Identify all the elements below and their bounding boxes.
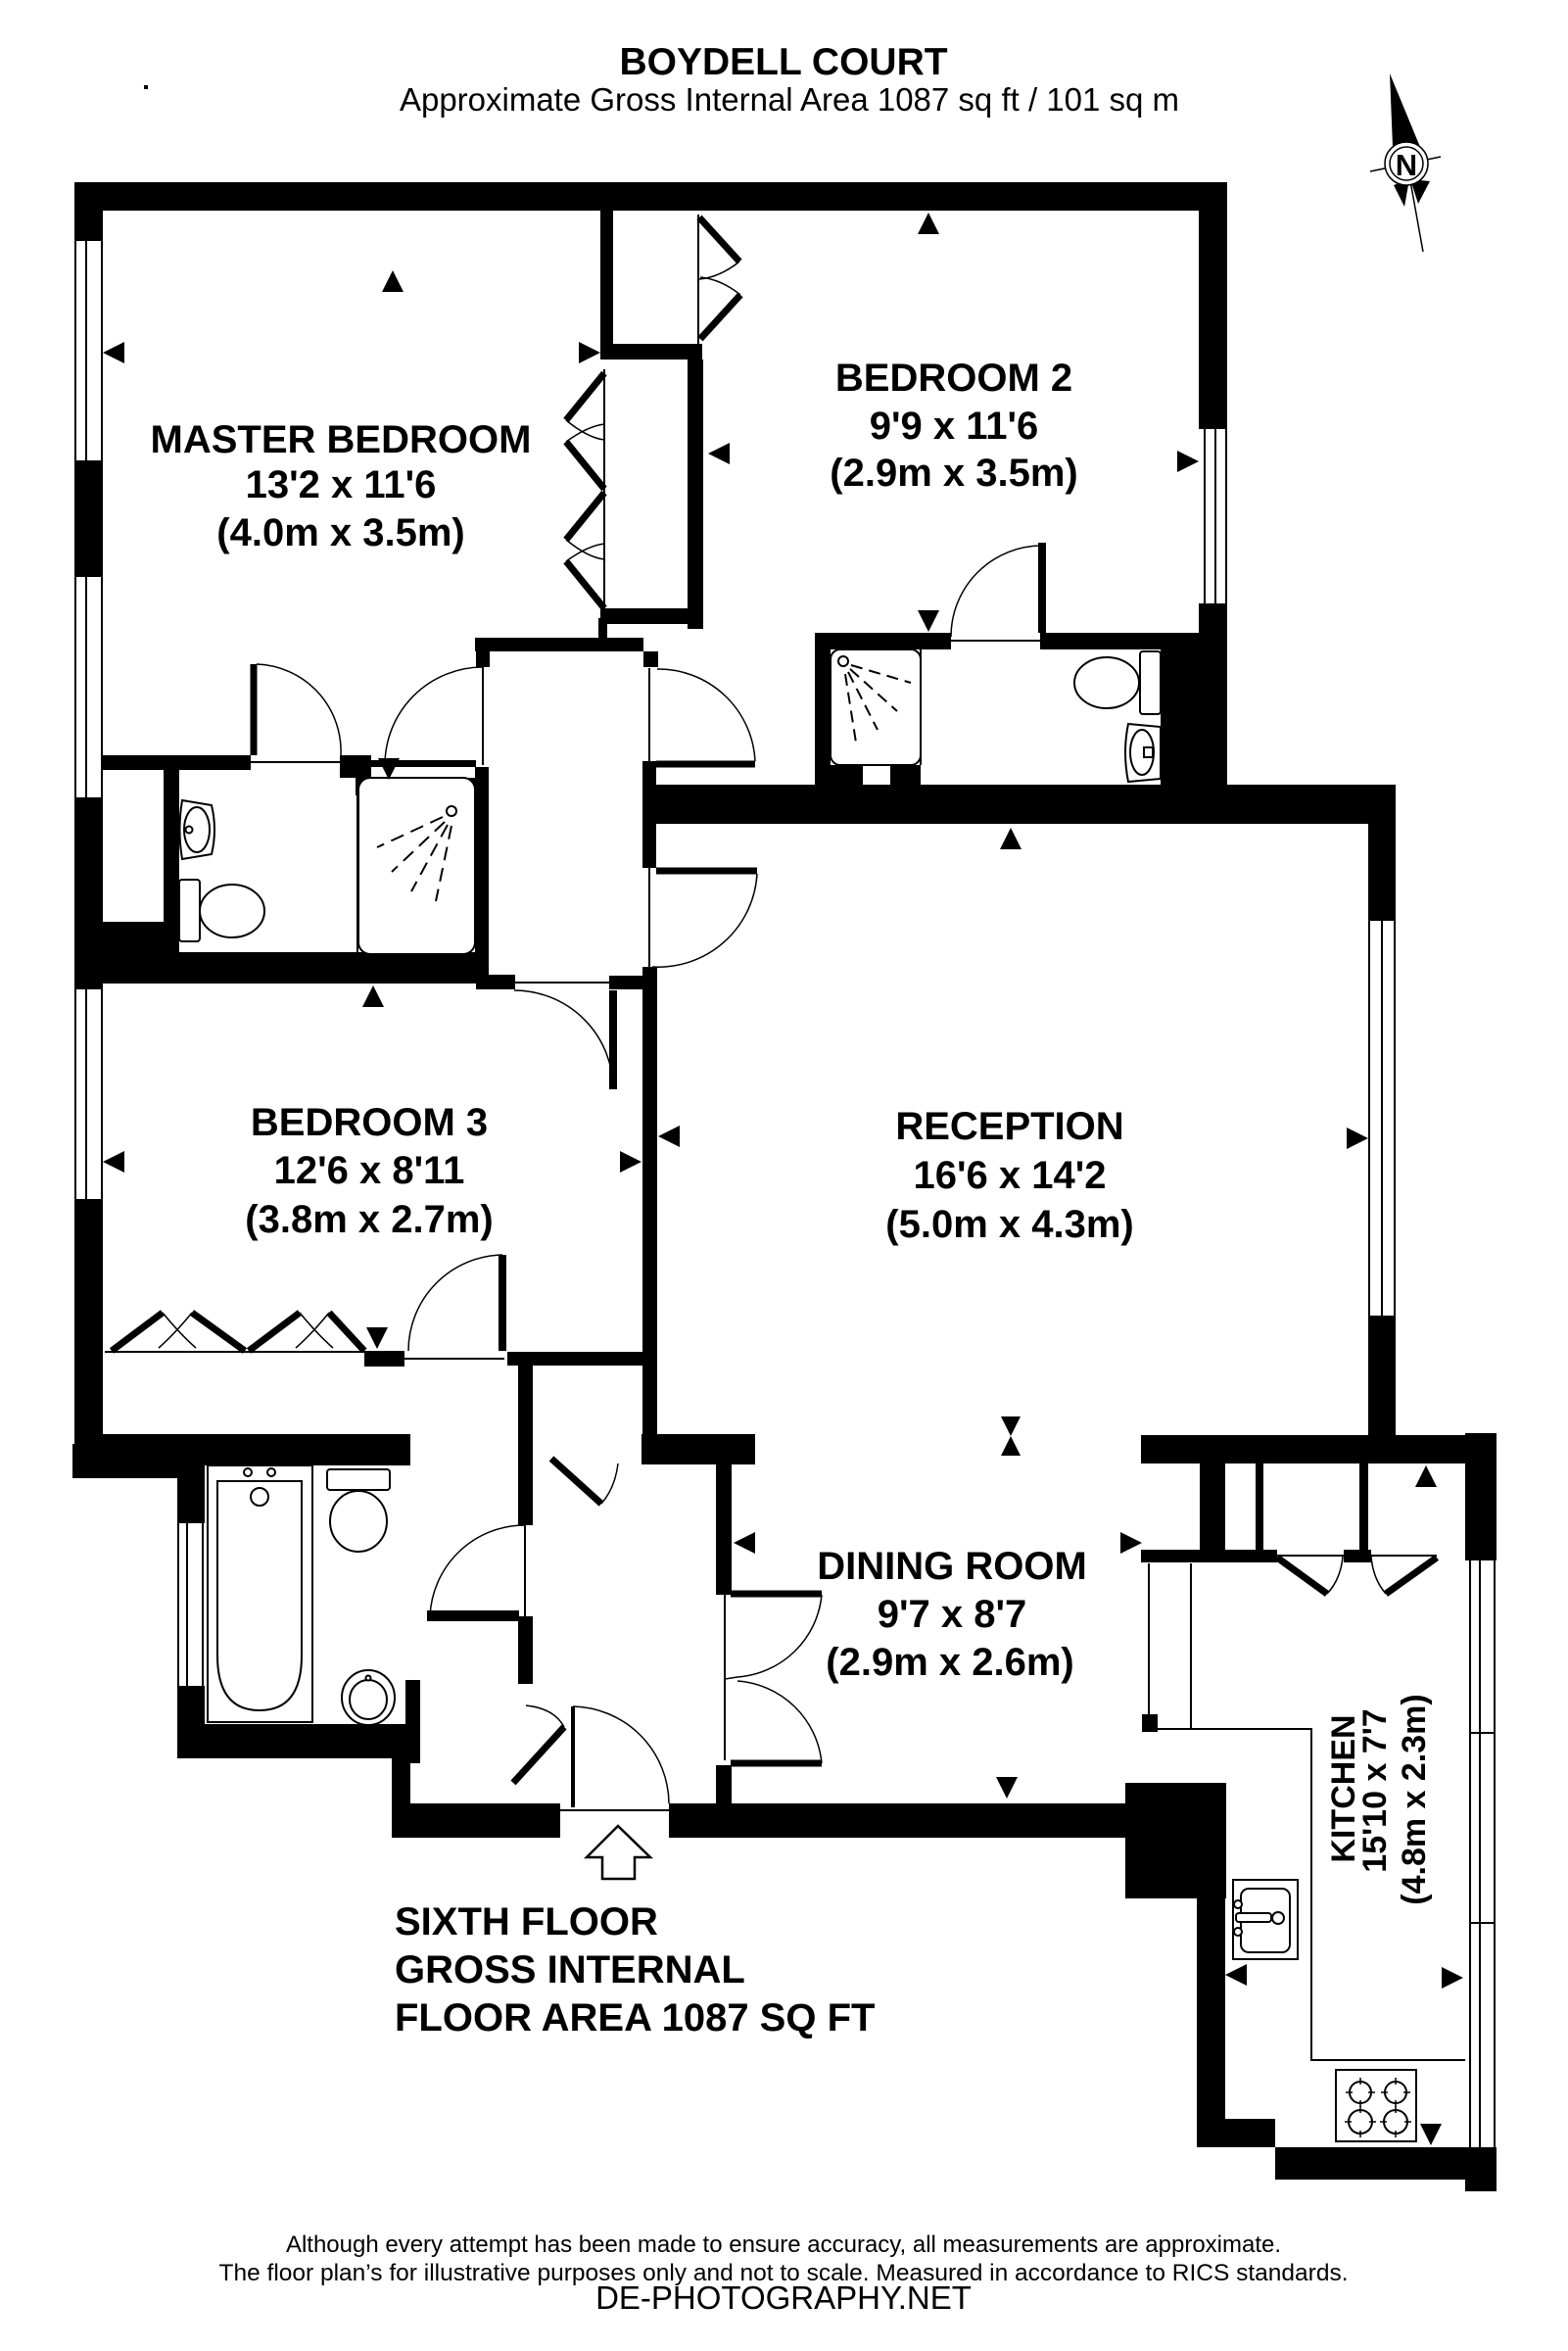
svg-text:SIXTH FLOOR: SIXTH FLOOR	[395, 1900, 658, 1943]
svg-text:16'6 x 14'2: 16'6 x 14'2	[914, 1154, 1107, 1197]
svg-text:GROSS INTERNAL: GROSS INTERNAL	[395, 1948, 745, 1991]
svg-text:9'7 x 8'7: 9'7 x 8'7	[878, 1593, 1026, 1636]
svg-text:15'10 x 7'7: 15'10 x 7'7	[1356, 1708, 1394, 1872]
svg-text:(2.9m x 2.6m): (2.9m x 2.6m)	[826, 1641, 1073, 1684]
svg-text:(4.8m x 2.3m): (4.8m x 2.3m)	[1396, 1694, 1433, 1904]
svg-text:N: N	[1396, 148, 1417, 182]
svg-text:9'9 x 11'6: 9'9 x 11'6	[870, 405, 1039, 448]
svg-text:(4.0m x 3.5m): (4.0m x 3.5m)	[216, 511, 464, 554]
svg-text:(5.0m x 4.3m): (5.0m x 4.3m)	[885, 1203, 1133, 1246]
svg-text:MASTER BEDROOM: MASTER BEDROOM	[151, 418, 532, 461]
svg-text:13'2 x 11'6: 13'2 x 11'6	[246, 463, 437, 506]
svg-text:RECEPTION: RECEPTION	[895, 1105, 1123, 1148]
svg-text:BEDROOM 3: BEDROOM 3	[251, 1101, 488, 1144]
svg-text:DINING ROOM: DINING ROOM	[817, 1545, 1087, 1588]
svg-text:(3.8m x 2.7m): (3.8m x 2.7m)	[245, 1198, 493, 1241]
svg-text:BEDROOM 2: BEDROOM 2	[835, 357, 1072, 400]
svg-text:12'6 x 8'11: 12'6 x 8'11	[274, 1149, 465, 1192]
svg-text:BOYDELL COURT: BOYDELL COURT	[619, 41, 947, 83]
svg-text:DE-PHOTOGRAPHY.NET: DE-PHOTOGRAPHY.NET	[595, 2279, 972, 2316]
svg-text:(2.9m x 3.5m): (2.9m x 3.5m)	[830, 452, 1077, 495]
svg-text:Although every attempt has bee: Although every attempt has been made to …	[286, 2231, 1281, 2258]
svg-text:FLOOR AREA 1087 SQ FT: FLOOR AREA 1087 SQ FT	[395, 1996, 875, 2039]
svg-text:Approximate Gross Internal Are: Approximate Gross Internal Area 1087 sq …	[400, 81, 1179, 118]
